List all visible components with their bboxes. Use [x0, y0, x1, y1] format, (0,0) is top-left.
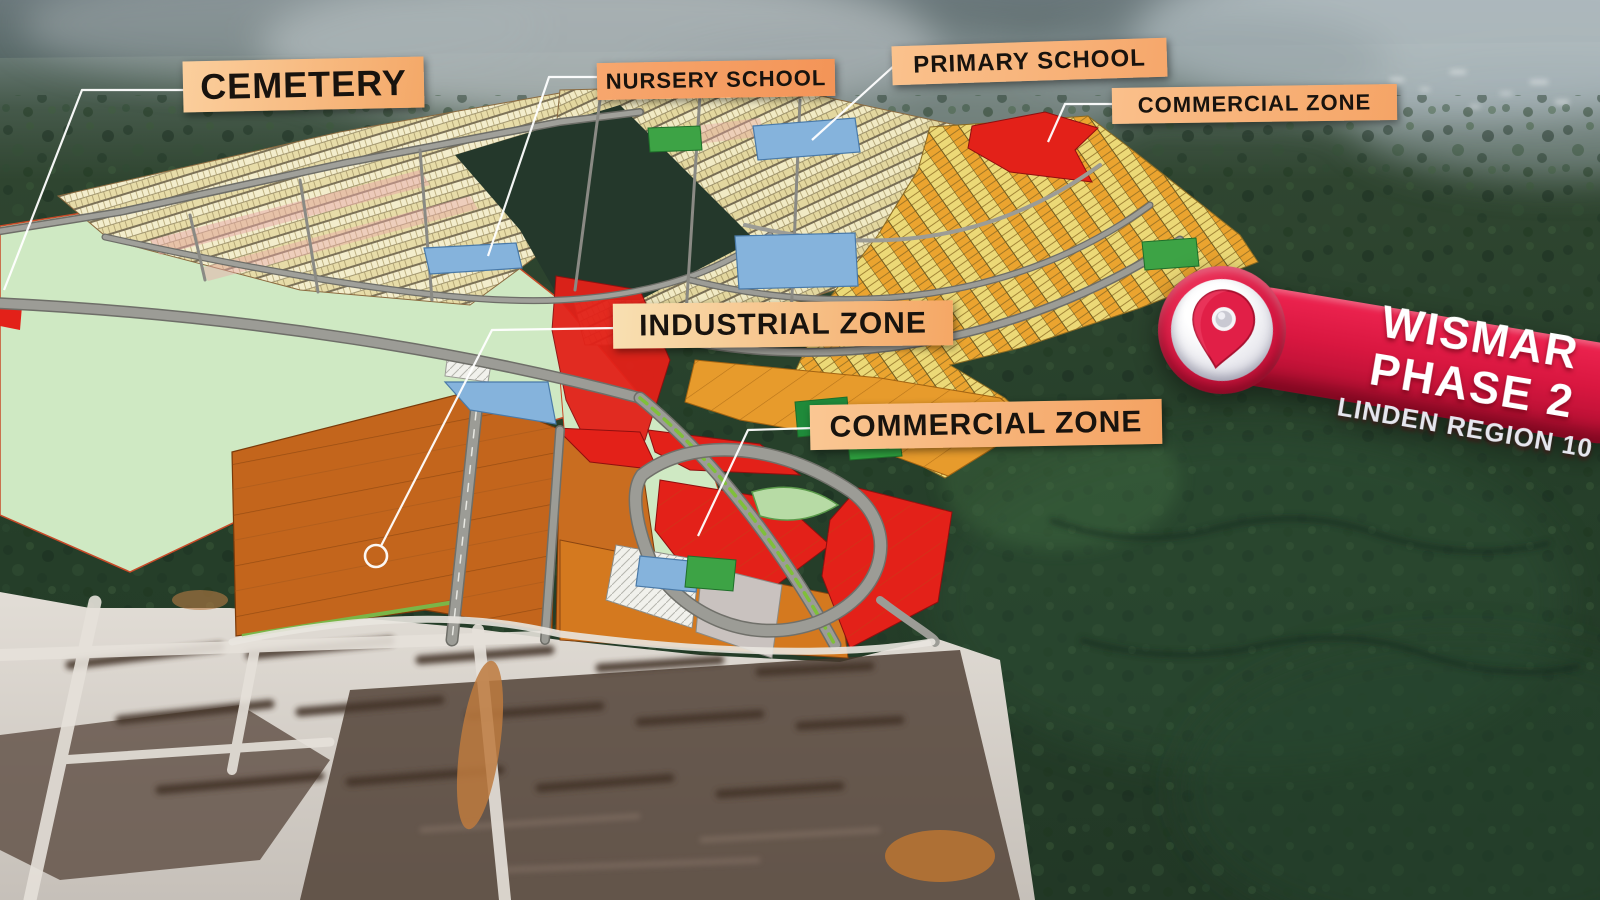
nursery-school-parcel [424, 243, 522, 274]
map-pin-icon [1178, 278, 1266, 383]
label-cemetery: CEMETERY [182, 56, 424, 112]
label-industrial-zone: INDUSTRIAL ZONE [613, 300, 953, 349]
label-commercial-zone-north: COMMERCIAL ZONE [1112, 84, 1397, 124]
label-nursery-school: NURSERY SCHOOL [597, 59, 836, 100]
label-commercial-zone-central: COMMERCIAL ZONE [810, 399, 1163, 450]
primary-school-parcel [753, 118, 860, 160]
aerial-photo-background [0, 0, 1600, 900]
aerial-masterplan-image: CEMETERY NURSERY SCHOOL PRIMARY SCHOOL C… [0, 0, 1600, 900]
